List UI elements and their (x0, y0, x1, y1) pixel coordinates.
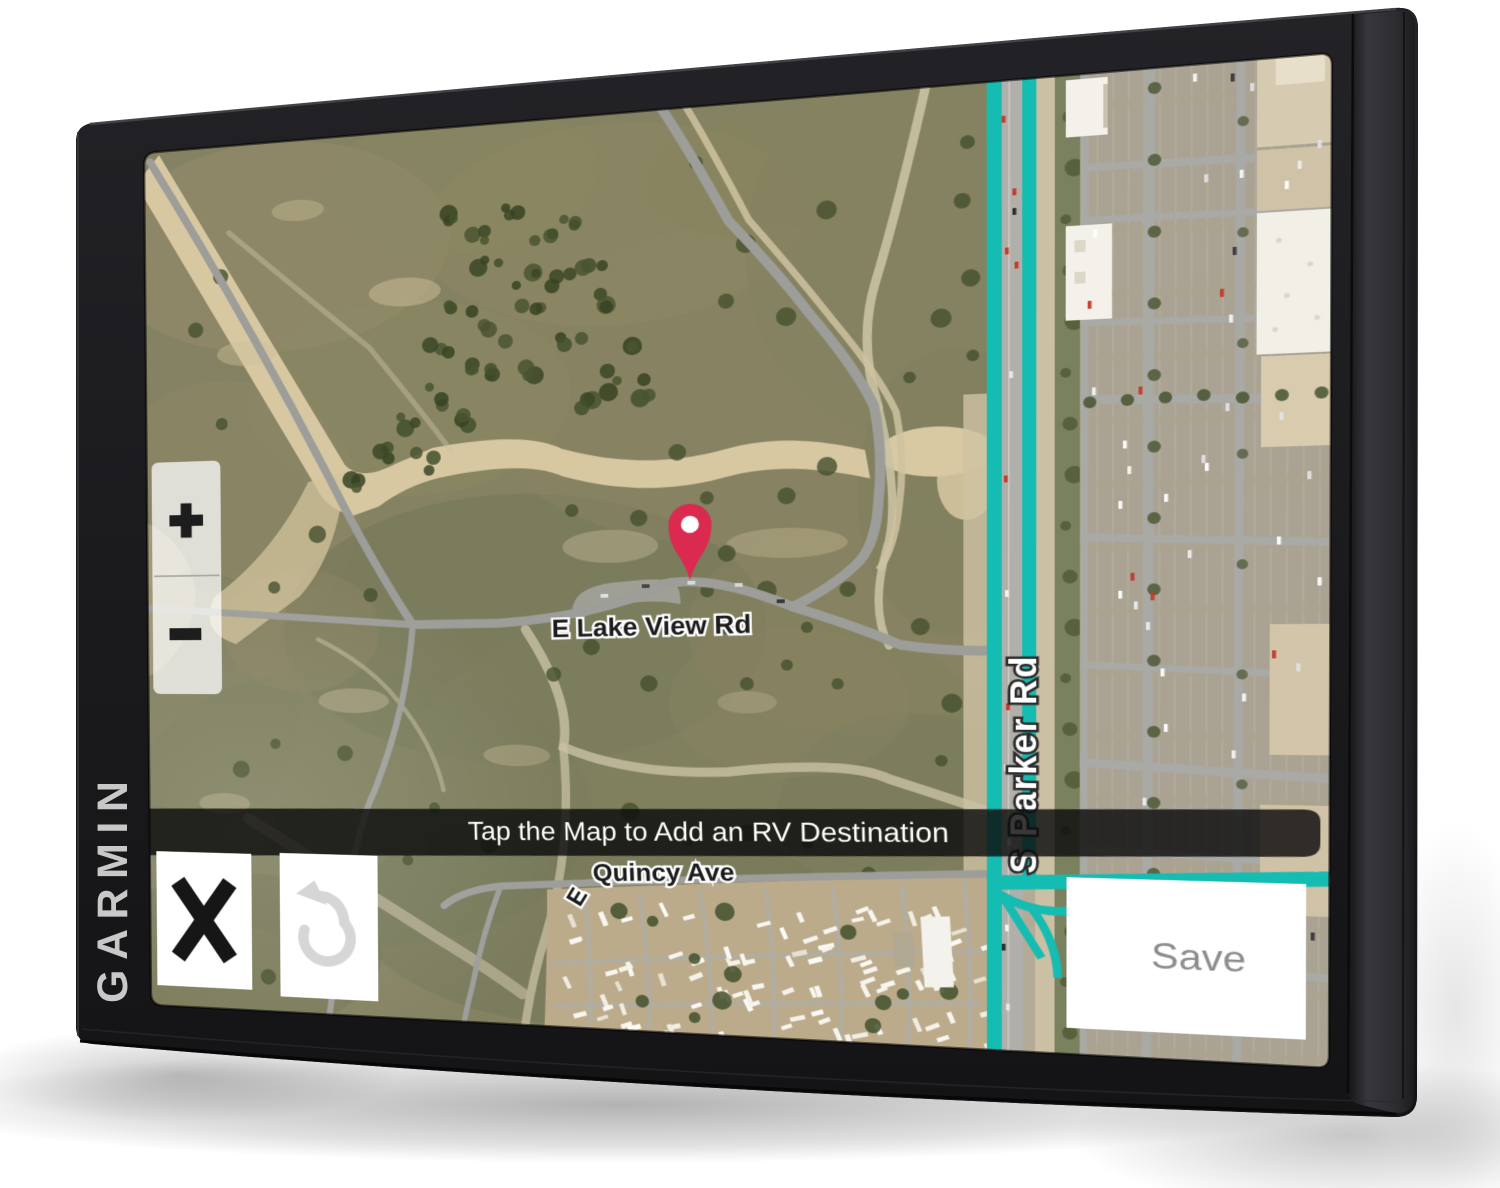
svg-text:GARMIN: GARMIN (89, 772, 137, 1003)
